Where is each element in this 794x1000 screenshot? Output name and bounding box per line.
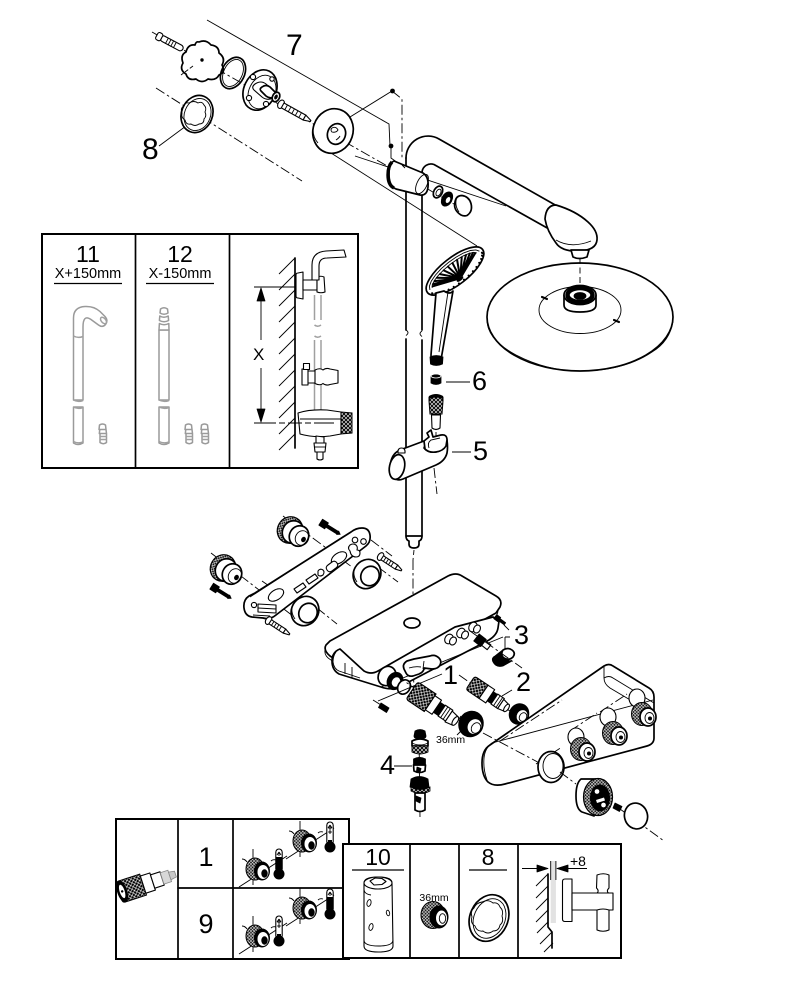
svg-text:+8: +8 xyxy=(570,853,586,869)
svg-text:X-150mm: X-150mm xyxy=(149,266,212,282)
svg-text:X: X xyxy=(253,345,264,364)
svg-text:10: 10 xyxy=(365,844,391,870)
svg-text:6: 6 xyxy=(472,366,487,396)
svg-text:36mm: 36mm xyxy=(436,734,465,746)
svg-text:5: 5 xyxy=(473,436,488,466)
svg-text:11: 11 xyxy=(76,241,100,267)
svg-text:X+150mm: X+150mm xyxy=(55,266,122,282)
svg-text:2: 2 xyxy=(516,667,531,697)
svg-text:9: 9 xyxy=(198,909,213,939)
svg-text:1: 1 xyxy=(443,660,458,690)
svg-text:8: 8 xyxy=(142,133,159,166)
svg-text:8: 8 xyxy=(482,844,495,870)
svg-text:12: 12 xyxy=(167,241,193,267)
svg-text:1: 1 xyxy=(198,842,213,872)
svg-text:3: 3 xyxy=(514,620,529,650)
svg-text:7: 7 xyxy=(286,29,303,62)
svg-text:4: 4 xyxy=(380,750,395,780)
